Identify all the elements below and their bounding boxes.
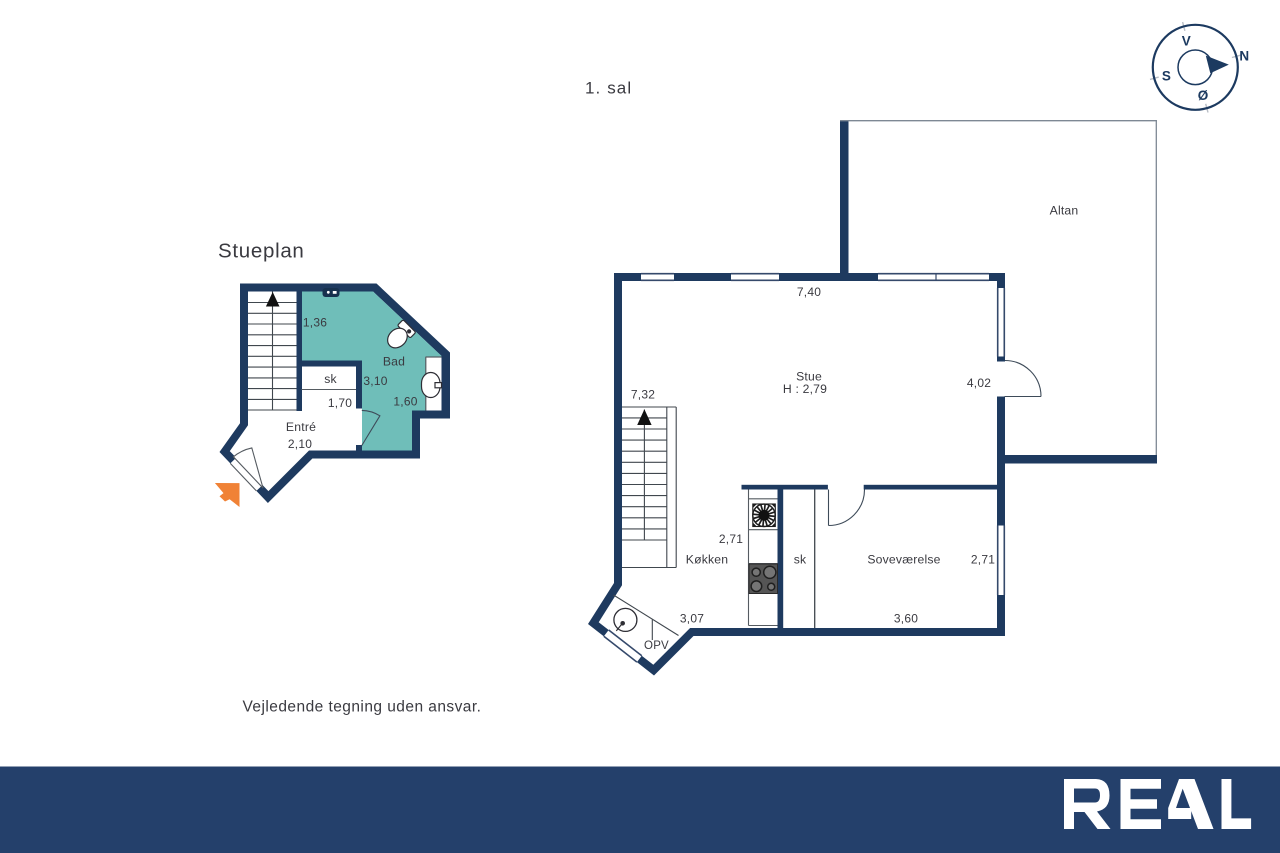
svg-text:Køkken: Køkken [686,553,729,567]
svg-text:S: S [1162,68,1171,83]
svg-text:V: V [1182,33,1191,48]
svg-text:2,71: 2,71 [971,553,995,567]
svg-text:1,36: 1,36 [303,316,327,330]
svg-text:4,02: 4,02 [967,376,991,390]
svg-text:Vejledende tegning uden ansvar: Vejledende tegning uden ansvar. [243,699,482,716]
svg-text:1. sal: 1. sal [585,79,632,98]
svg-text:N: N [1239,48,1249,63]
svg-text:7,32: 7,32 [631,388,655,402]
svg-text:7,40: 7,40 [797,285,821,299]
svg-text:2,71: 2,71 [719,532,743,546]
svg-text:sk: sk [324,372,337,386]
svg-text:Ø: Ø [1198,88,1209,103]
svg-text:Stueplan: Stueplan [218,240,305,263]
svg-text:3,10: 3,10 [363,374,387,388]
svg-text:3,07: 3,07 [680,612,704,626]
svg-text:Altan: Altan [1050,204,1079,218]
svg-text:1,70: 1,70 [328,396,352,410]
svg-text:Bad: Bad [383,355,405,369]
svg-text:3,60: 3,60 [894,612,918,626]
svg-text:OPV: OPV [644,640,669,652]
svg-text:sk: sk [794,553,807,567]
svg-text:Soveværelse: Soveværelse [867,553,940,567]
svg-text:H : 2,79: H : 2,79 [783,382,827,396]
svg-text:Entré: Entré [286,420,316,434]
svg-text:1,60: 1,60 [393,395,417,409]
svg-text:2,10: 2,10 [288,437,312,451]
